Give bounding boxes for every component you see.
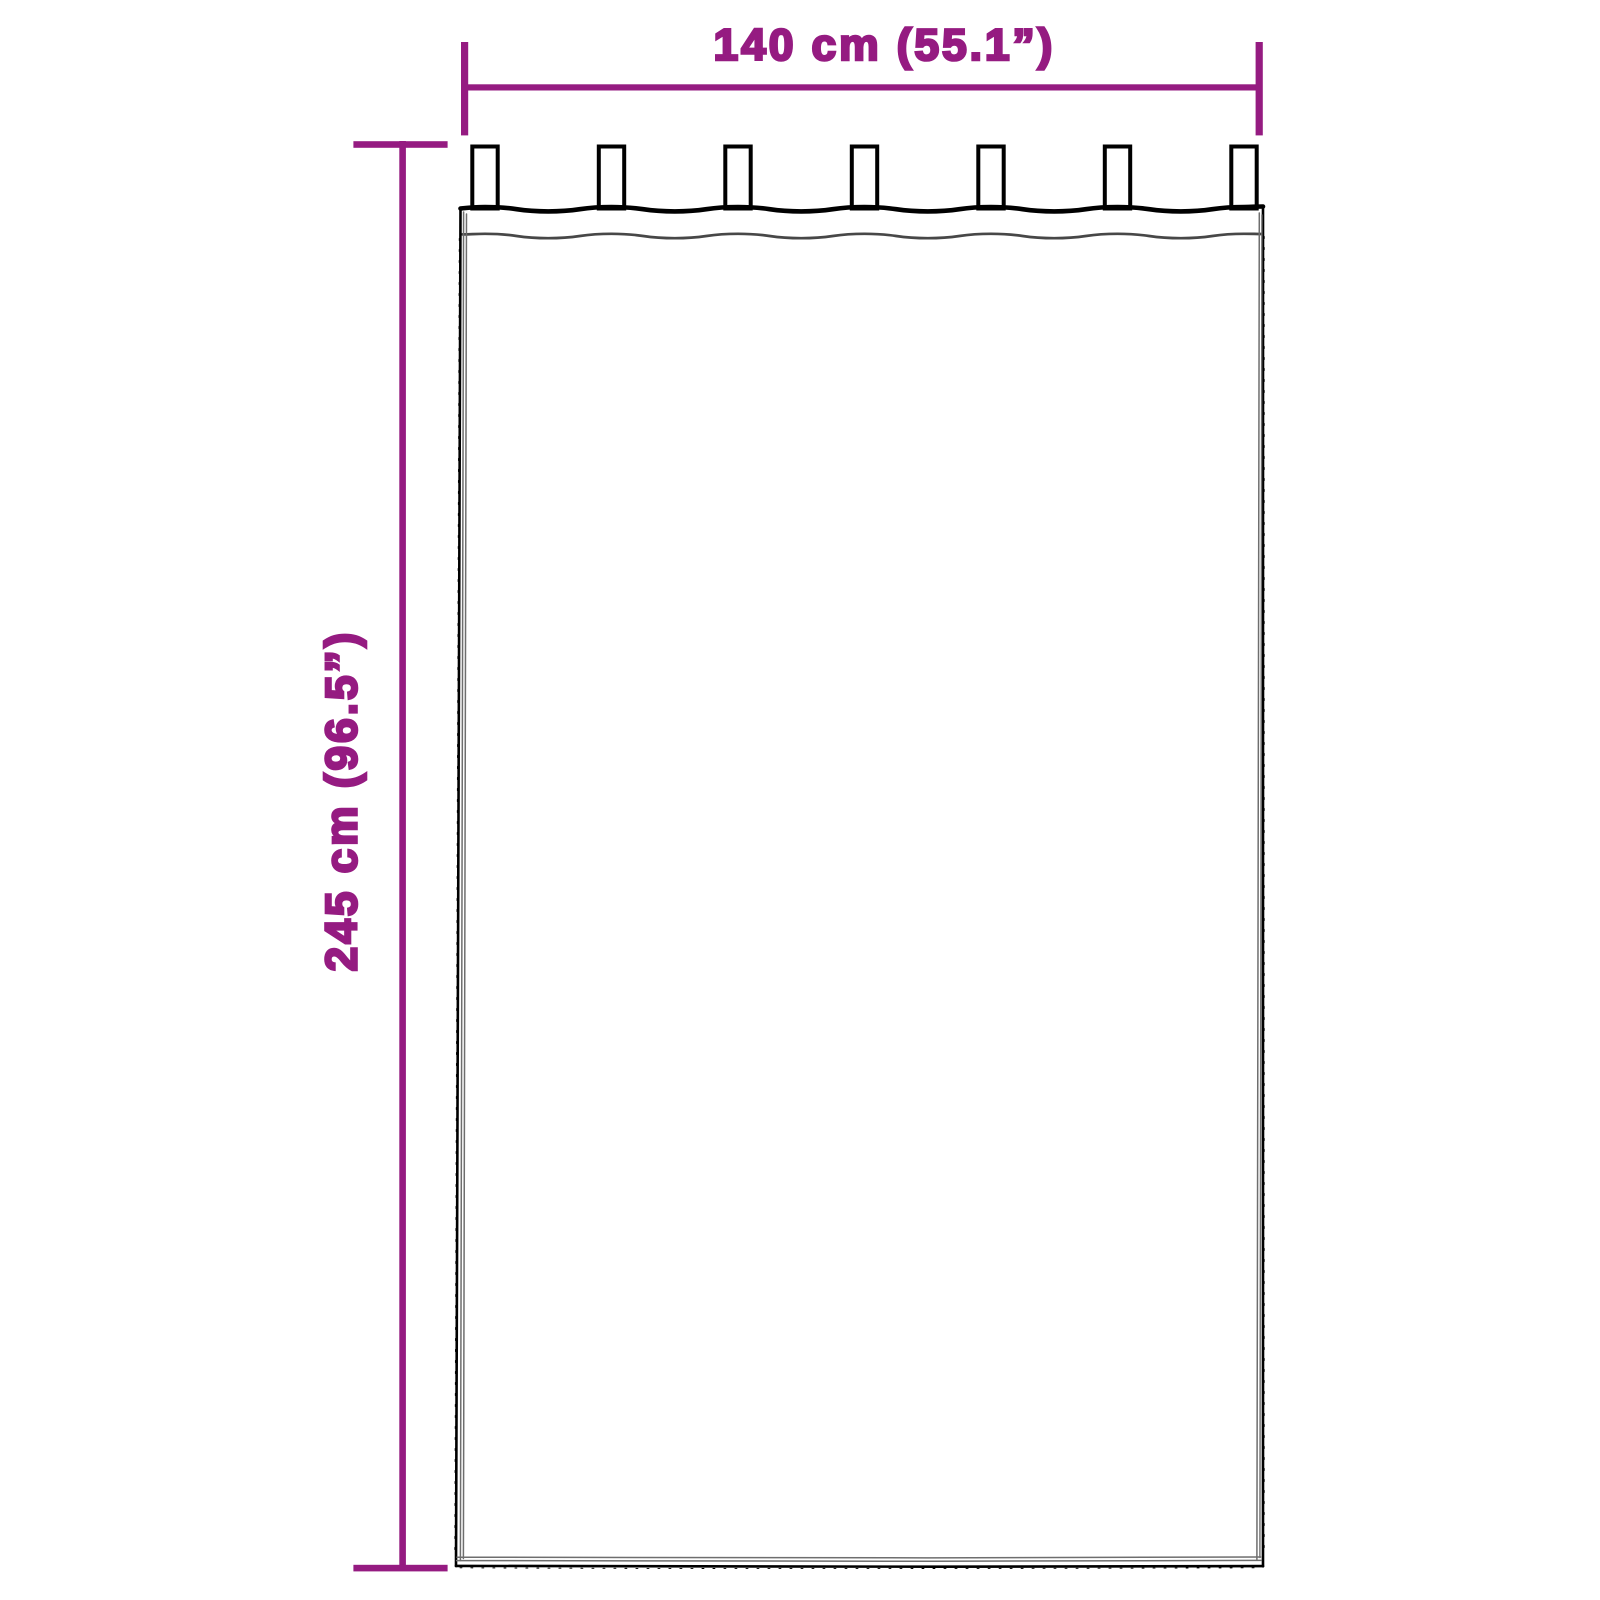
svg-text:140 cm (55.1”): 140 cm (55.1”) <box>714 21 1056 70</box>
svg-text:245 cm (96.5”): 245 cm (96.5”) <box>318 630 367 972</box>
